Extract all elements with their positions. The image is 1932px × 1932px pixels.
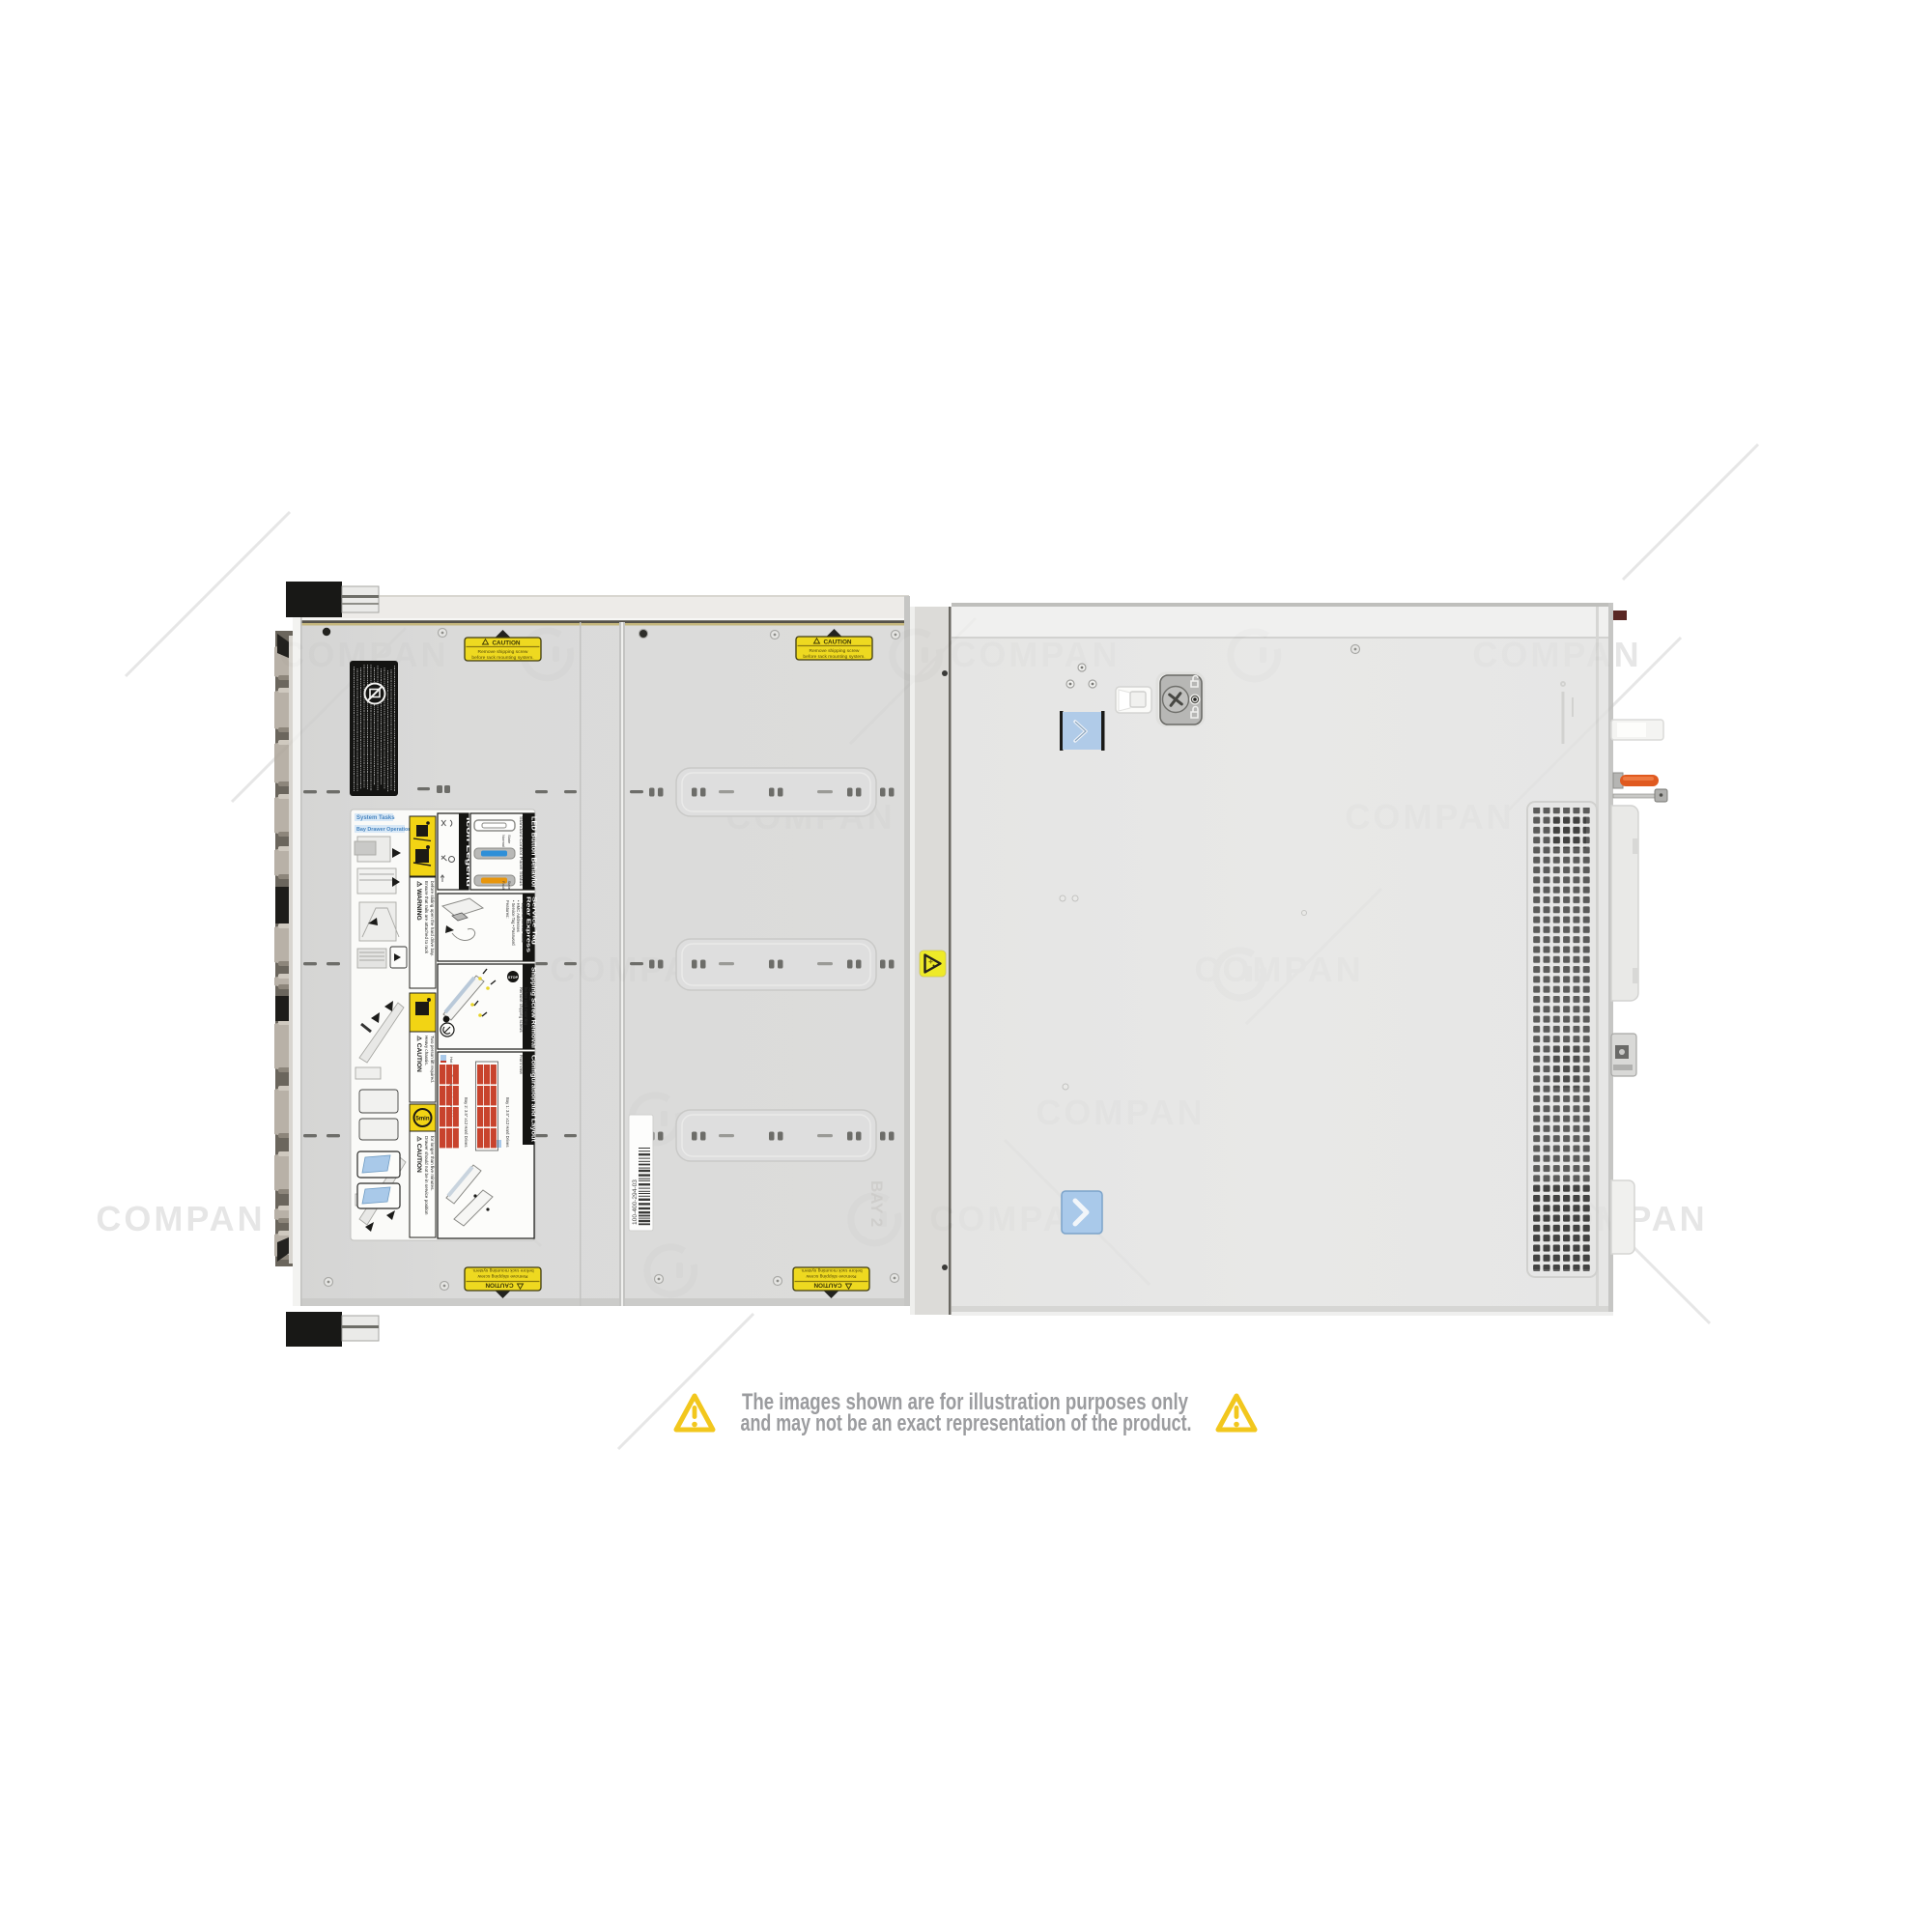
svg-text:State: State (507, 881, 512, 891)
svg-text:Normal: Normal (501, 835, 506, 847)
svg-text:Bay 1: 3.5” x12 Hard Drives: Bay 1: 3.5” x12 Hard Drives (505, 1097, 510, 1147)
svg-text:Remove shipping screw: Remove shipping screw (810, 648, 860, 654)
svg-text:• Express Service Code: • Express Service Code (521, 900, 526, 944)
svg-text:before rack mounting system.: before rack mounting system. (803, 654, 865, 660)
svg-text:for longer than five minutes.: for longer than five minutes. (430, 1136, 435, 1191)
svg-text:Bay 2: 3.5” x12 Hard Drives: Bay 2: 3.5” x12 Hard Drives (464, 1097, 469, 1147)
svg-text:Fault: Fault (501, 881, 506, 891)
svg-text:Drawer should not be in servic: Drawer should not be in service position (424, 1136, 429, 1215)
svg-text:• Service Tag • Password: • Service Tag • Password (511, 900, 516, 946)
svg-text:100-400-294-03: 100-400-294-03 (632, 1179, 639, 1225)
svg-text:LED Button Behavior: LED Button Behavior (530, 816, 539, 888)
svg-text:Ensure that rails are attached: Ensure that rails are attached to rack (424, 881, 429, 954)
svg-text:BAY 2: BAY 2 (867, 1180, 886, 1227)
svg-text:system.: system. (528, 987, 533, 1001)
svg-text:System Tasks: System Tasks (356, 815, 395, 821)
svg-text:Bay Drawer Operation: Bay Drawer Operation (356, 827, 412, 833)
svg-text:COMPAN: COMPAN (1036, 1093, 1205, 1132)
svg-text:before rack mounting: before rack mounting (524, 987, 528, 1026)
svg-text:Front View: Front View (519, 1055, 524, 1075)
svg-text:before rack mounting system.: before rack mounting system. (800, 1267, 862, 1273)
svg-text:⚠ CAUTION: ⚠ CAUTION (415, 1136, 423, 1173)
svg-text:• HMC Addresses: • HMC Addresses (516, 900, 521, 932)
svg-text:before sliding open the hard d: before sliding open the hard drive bay. (430, 881, 435, 956)
svg-text:COMPAN: COMPAN (1345, 797, 1514, 837)
svg-text:COMPAN: COMPAN (1472, 635, 1641, 674)
svg-text:CAUTION: CAUTION (823, 639, 851, 646)
svg-text:State: State (507, 835, 512, 844)
svg-text:CAUTION: CAUTION (813, 1282, 841, 1289)
svg-text:Heavy chassis.: Heavy chassis. (424, 1036, 429, 1065)
svg-text:Configuration and Layout: Configuration and Layout (530, 1055, 537, 1143)
svg-text:Features:: Features: (505, 900, 510, 919)
svg-text:and may not be an exact repres: and may not be an exact representation o… (741, 1410, 1192, 1436)
svg-text:Shipping Screw Removal: Shipping Screw Removal (530, 967, 537, 1048)
svg-text:STOP: STOP (508, 976, 519, 980)
svg-text:Remove shipping screw: Remove shipping screw (477, 1273, 527, 1279)
svg-text:COMPAN: COMPAN (96, 1199, 265, 1238)
svg-text:COMPAN: COMPAN (951, 635, 1120, 674)
svg-text:Standard Control Panel Status: Standard Control Panel Status (519, 816, 524, 887)
svg-text:CAUTION: CAUTION (485, 1282, 513, 1289)
svg-text:Remove shipping screw: Remove shipping screw (806, 1273, 856, 1279)
svg-text:5min: 5min (415, 1117, 429, 1122)
svg-text:before rack mounting system.: before rack mounting system. (471, 655, 533, 661)
svg-text:Two person lift required.: Two person lift required. (430, 1036, 435, 1083)
svg-text:⚠ WARNING: ⚠ WARNING (415, 881, 423, 921)
svg-text:before rack mounting system.: before rack mounting system. (471, 1267, 533, 1273)
svg-text:Remove shipping screw: Remove shipping screw (478, 649, 528, 655)
svg-text:Remove shipping screws: Remove shipping screws (519, 987, 524, 1033)
svg-text:CAUTION: CAUTION (492, 640, 520, 647)
svg-text:⚠ CAUTION: ⚠ CAUTION (415, 1036, 423, 1072)
svg-text:Service Tag: Service Tag (531, 896, 537, 946)
